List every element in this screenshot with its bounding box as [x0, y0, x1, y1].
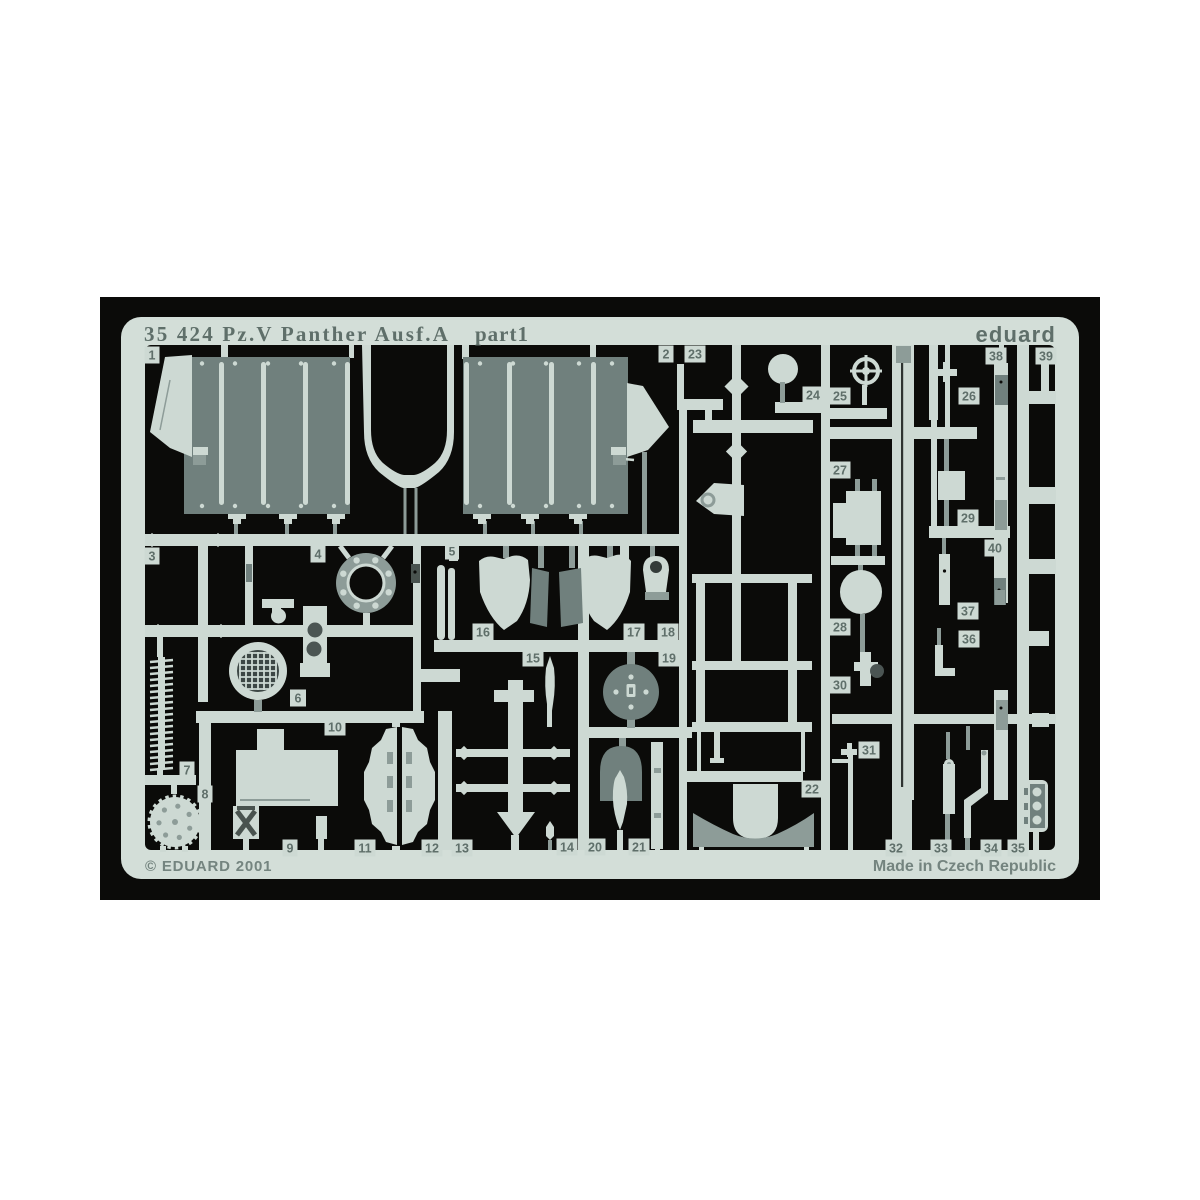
svg-text:14: 14 — [560, 841, 574, 855]
svg-text:12: 12 — [425, 842, 439, 856]
svg-text:15: 15 — [526, 652, 540, 666]
svg-text:20: 20 — [588, 841, 602, 855]
svg-text:35 424 Pz.V Panther Ausf.A: 35 424 Pz.V Panther Ausf.A — [144, 322, 450, 346]
svg-text:25: 25 — [833, 390, 847, 404]
svg-text:10: 10 — [328, 721, 342, 735]
svg-text:3: 3 — [149, 550, 156, 564]
svg-text:Made in Czech Republic: Made in Czech Republic — [873, 858, 1056, 875]
svg-text:32: 32 — [889, 842, 903, 856]
svg-text:17: 17 — [627, 626, 641, 640]
svg-text:18: 18 — [661, 626, 675, 640]
svg-text:27: 27 — [833, 464, 847, 478]
svg-text:© EDUARD 2001: © EDUARD 2001 — [145, 858, 272, 875]
svg-text:7: 7 — [184, 764, 191, 778]
svg-text:16: 16 — [476, 626, 490, 640]
svg-text:19: 19 — [662, 652, 676, 666]
svg-text:37: 37 — [961, 605, 975, 619]
svg-text:6: 6 — [295, 692, 302, 706]
svg-text:8: 8 — [202, 788, 209, 802]
svg-text:33: 33 — [934, 842, 948, 856]
svg-text:22: 22 — [805, 783, 819, 797]
svg-text:30: 30 — [833, 679, 847, 693]
svg-text:part1: part1 — [475, 322, 529, 346]
svg-text:34: 34 — [984, 842, 998, 856]
svg-text:29: 29 — [961, 512, 975, 526]
svg-text:5: 5 — [449, 545, 456, 559]
svg-text:23: 23 — [688, 348, 702, 362]
svg-text:38: 38 — [989, 350, 1003, 364]
svg-text:4: 4 — [315, 548, 322, 562]
svg-text:36: 36 — [962, 633, 976, 647]
svg-text:21: 21 — [632, 841, 646, 855]
svg-text:40: 40 — [988, 542, 1002, 556]
svg-text:39: 39 — [1039, 350, 1053, 364]
svg-text:13: 13 — [455, 842, 469, 856]
svg-text:24: 24 — [806, 389, 820, 403]
svg-text:1: 1 — [149, 349, 156, 363]
svg-text:9: 9 — [287, 842, 294, 856]
svg-text:26: 26 — [962, 390, 976, 404]
svg-text:2: 2 — [663, 348, 670, 362]
svg-text:11: 11 — [358, 842, 371, 856]
svg-text:31: 31 — [862, 744, 876, 758]
svg-text:eduard: eduard — [975, 322, 1056, 347]
svg-text:28: 28 — [833, 621, 847, 635]
svg-text:35: 35 — [1011, 842, 1025, 856]
